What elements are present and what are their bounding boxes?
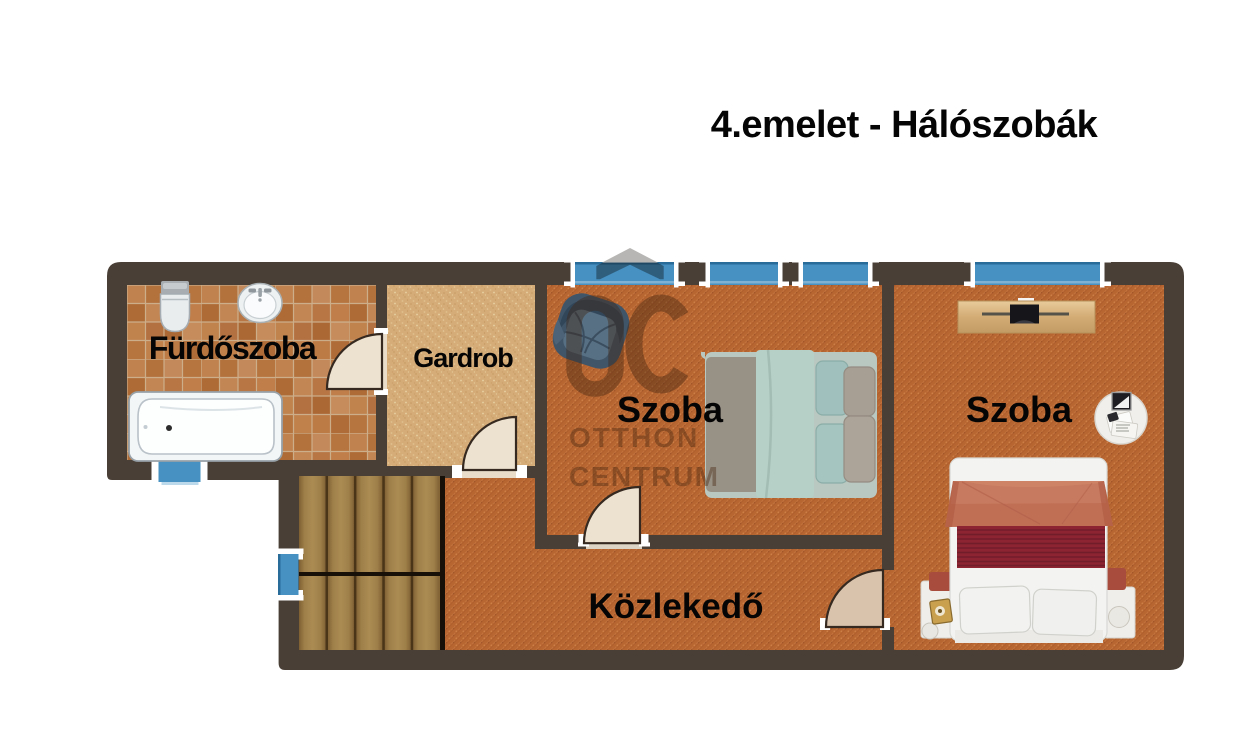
svg-text:Szoba: Szoba xyxy=(617,389,724,430)
svg-text:Szoba: Szoba xyxy=(966,389,1073,430)
svg-text:Fürdőszoba: Fürdőszoba xyxy=(149,330,317,366)
svg-text:4.emelet - Hálószobák: 4.emelet - Hálószobák xyxy=(711,104,1099,146)
svg-text:Közlekedő: Közlekedő xyxy=(588,587,763,626)
svg-text:CENTRUM: CENTRUM xyxy=(569,461,720,492)
svg-text:Gardrob: Gardrob xyxy=(413,343,513,373)
